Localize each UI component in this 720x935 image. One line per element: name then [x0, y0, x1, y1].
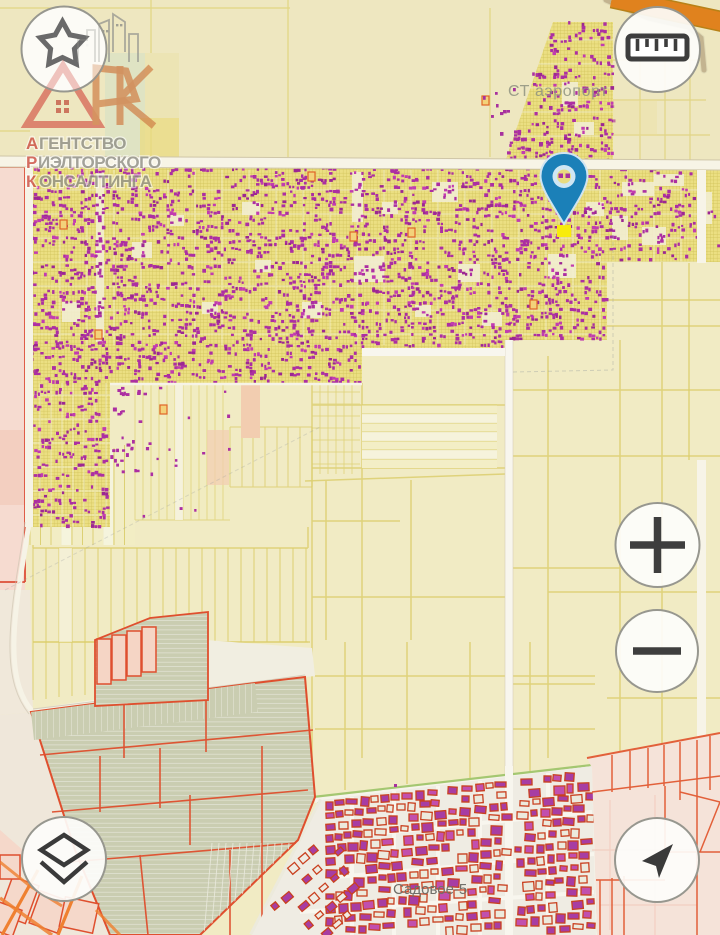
svg-text:ИЭЛТОРСКОГО: ИЭЛТОРСКОГО [38, 153, 161, 172]
svg-text:Р: Р [26, 153, 37, 172]
svg-text:А: А [26, 134, 38, 153]
svg-text:СТ аэропорт: СТ аэропорт [508, 83, 608, 100]
svg-text:ГЕНТСТВО: ГЕНТСТВО [39, 134, 126, 153]
svg-text:ОНСАЛТИНГА: ОНСАЛТИНГА [39, 172, 152, 191]
svg-text:К: К [26, 172, 37, 191]
svg-text:Садовое-5: Садовое-5 [393, 881, 467, 898]
